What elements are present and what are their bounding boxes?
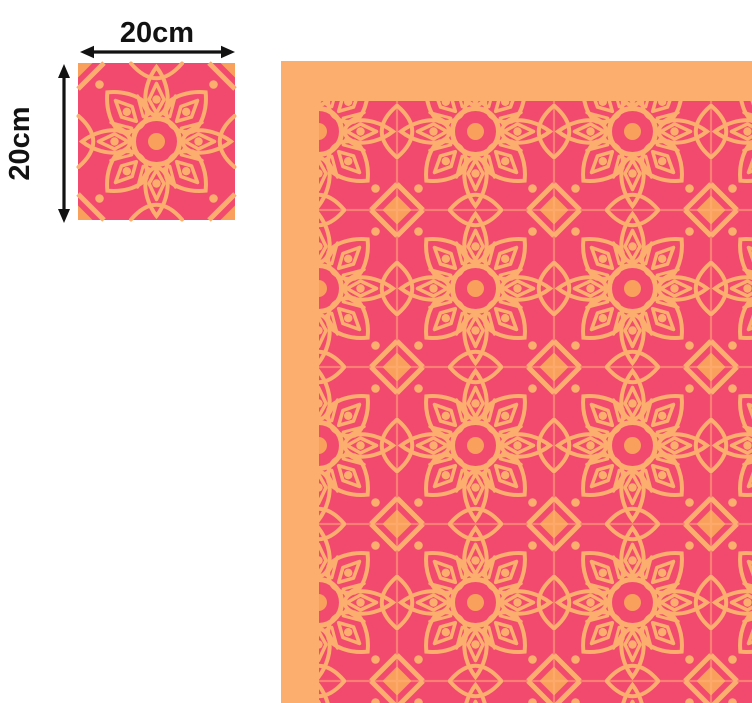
- arrow-right-icon: [221, 46, 235, 58]
- tile-height-label: 20cm: [4, 106, 36, 180]
- mandala-motif: [78, 63, 235, 220]
- arrow-left-icon: [80, 46, 94, 58]
- arrow-down-icon: [58, 209, 70, 223]
- arrow-up-icon: [58, 64, 70, 78]
- tile-width-label: 20cm: [120, 17, 194, 49]
- tile-sample: [78, 63, 235, 220]
- tile-size-diagram: 20cm 20cm: [0, 0, 752, 703]
- pattern-panel: [281, 61, 752, 703]
- tiled-surface: [319, 101, 752, 703]
- tile-diagram-canvas: 20cm 20cm: [0, 0, 752, 703]
- height-dimension-arrow: [58, 64, 70, 223]
